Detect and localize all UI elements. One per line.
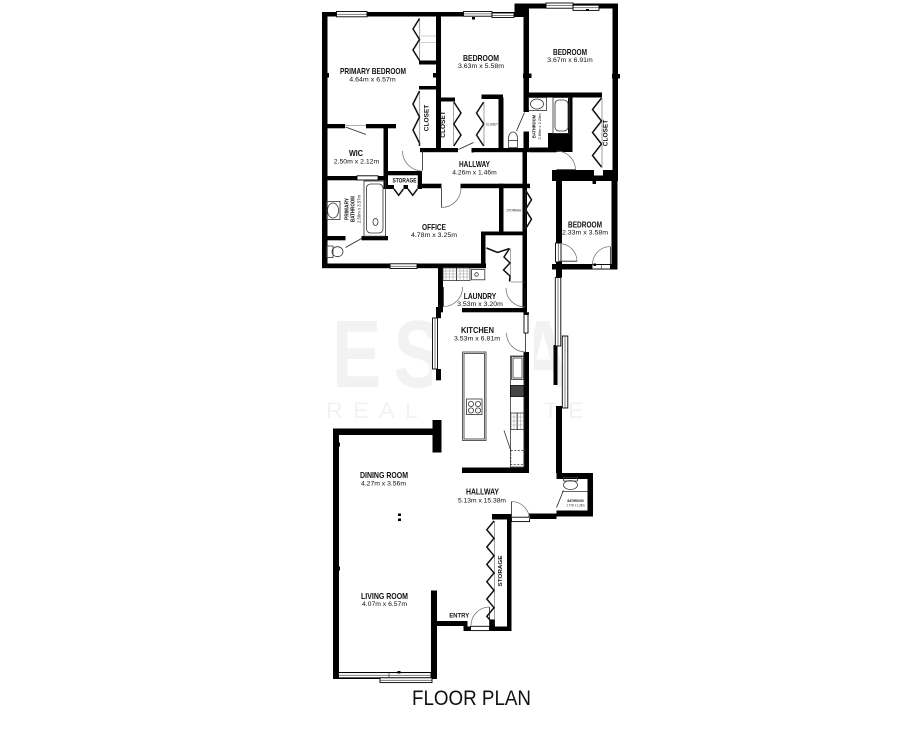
svg-text:STORAGE: STORAGE <box>498 555 504 586</box>
svg-text:1.77m x 1.26m: 1.77m x 1.26m <box>567 504 585 508</box>
svg-text:HALLWAY: HALLWAY <box>466 488 499 497</box>
svg-text:4.26m x 1.46m: 4.26m x 1.46m <box>452 169 497 176</box>
svg-text:WIC: WIC <box>349 149 363 158</box>
svg-text:3.63m x 5.58m: 3.63m x 5.58m <box>458 63 504 70</box>
svg-text:CLOSET: CLOSET <box>424 105 431 132</box>
svg-text:STORAGE: STORAGE <box>507 209 523 213</box>
svg-text:2.50m x 3.57m: 2.50m x 3.57m <box>357 195 362 223</box>
svg-text:BEDROOM: BEDROOM <box>568 220 602 229</box>
svg-text:LAUNDRY: LAUNDRY <box>464 292 497 301</box>
svg-text:PRIMARY BEDROOM: PRIMARY BEDROOM <box>340 67 406 76</box>
svg-text:3.53m x 3.20m: 3.53m x 3.20m <box>457 301 503 308</box>
svg-text:CLOSET: CLOSET <box>603 120 610 147</box>
svg-text:2.89m x 2.23m: 2.89m x 2.23m <box>537 113 542 140</box>
svg-text:LIVING ROOM: LIVING ROOM <box>361 592 408 601</box>
svg-text:4.07m x 6.57m: 4.07m x 6.57m <box>362 601 407 608</box>
svg-text:CLOSET: CLOSET <box>486 123 498 127</box>
svg-text:3.53m x 6.81m: 3.53m x 6.81m <box>454 335 500 342</box>
svg-text:FLOOR PLAN: FLOOR PLAN <box>412 686 531 710</box>
svg-text:HALLWAY: HALLWAY <box>459 160 490 169</box>
svg-text:DINING ROOM: DINING ROOM <box>360 471 408 480</box>
svg-text:KITCHEN: KITCHEN <box>461 326 494 335</box>
svg-text:STORAGE: STORAGE <box>393 178 417 185</box>
svg-text:BEDROOM: BEDROOM <box>463 54 499 63</box>
svg-text:OFFICE: OFFICE <box>422 223 446 232</box>
svg-text:4.78m x 3.25m: 4.78m x 3.25m <box>411 232 457 239</box>
svg-text:5.13m x 15.38m: 5.13m x 15.38m <box>458 498 506 505</box>
svg-text:CLOSET: CLOSET <box>440 111 447 138</box>
svg-text:3.67m x 6.91m: 3.67m x 6.91m <box>547 57 593 64</box>
svg-text:4.64m x 6.57m: 4.64m x 6.57m <box>349 76 396 83</box>
svg-text:ENTRY: ENTRY <box>449 612 469 619</box>
svg-text:BATHROOM: BATHROOM <box>568 499 584 503</box>
svg-text:BEDROOM: BEDROOM <box>553 48 587 57</box>
svg-text:4.27m x 3.56m: 4.27m x 3.56m <box>361 480 406 487</box>
svg-text:2.50m x 2.12m: 2.50m x 2.12m <box>334 158 380 165</box>
svg-text:2.33m x 3.58m: 2.33m x 3.58m <box>562 229 608 236</box>
